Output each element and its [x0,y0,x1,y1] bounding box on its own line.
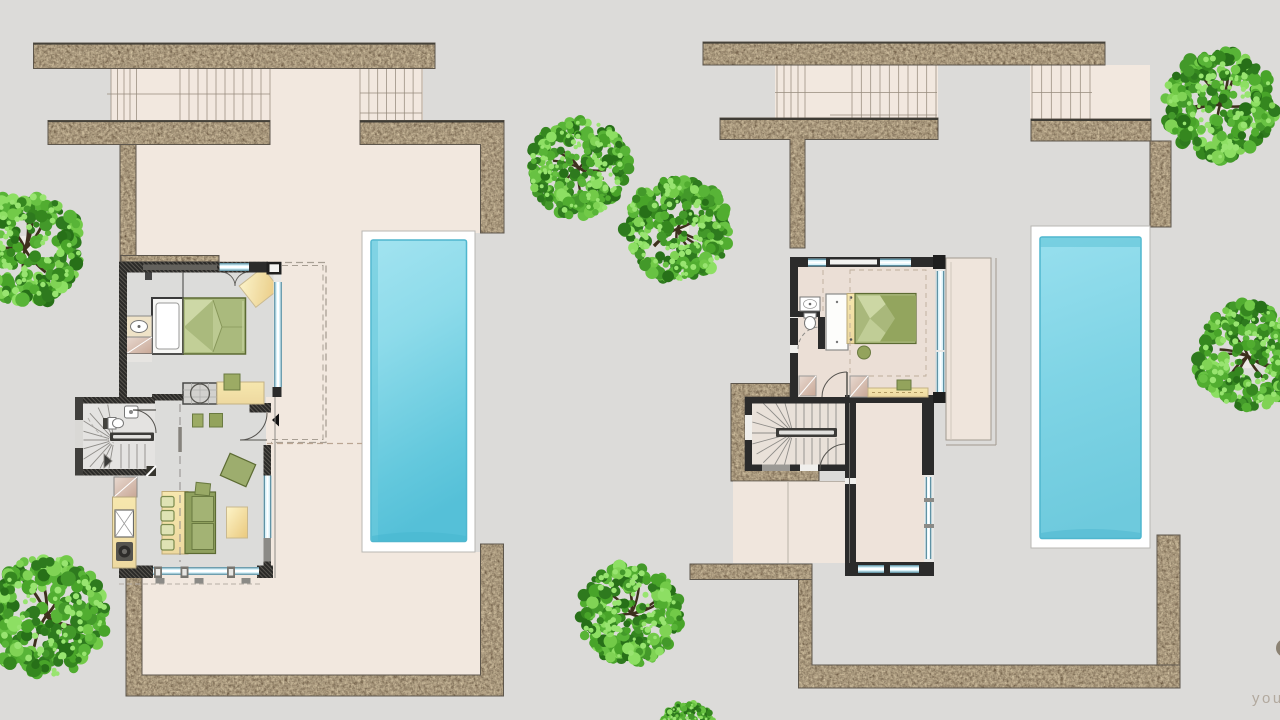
svg-text:you: you [1252,690,1280,707]
